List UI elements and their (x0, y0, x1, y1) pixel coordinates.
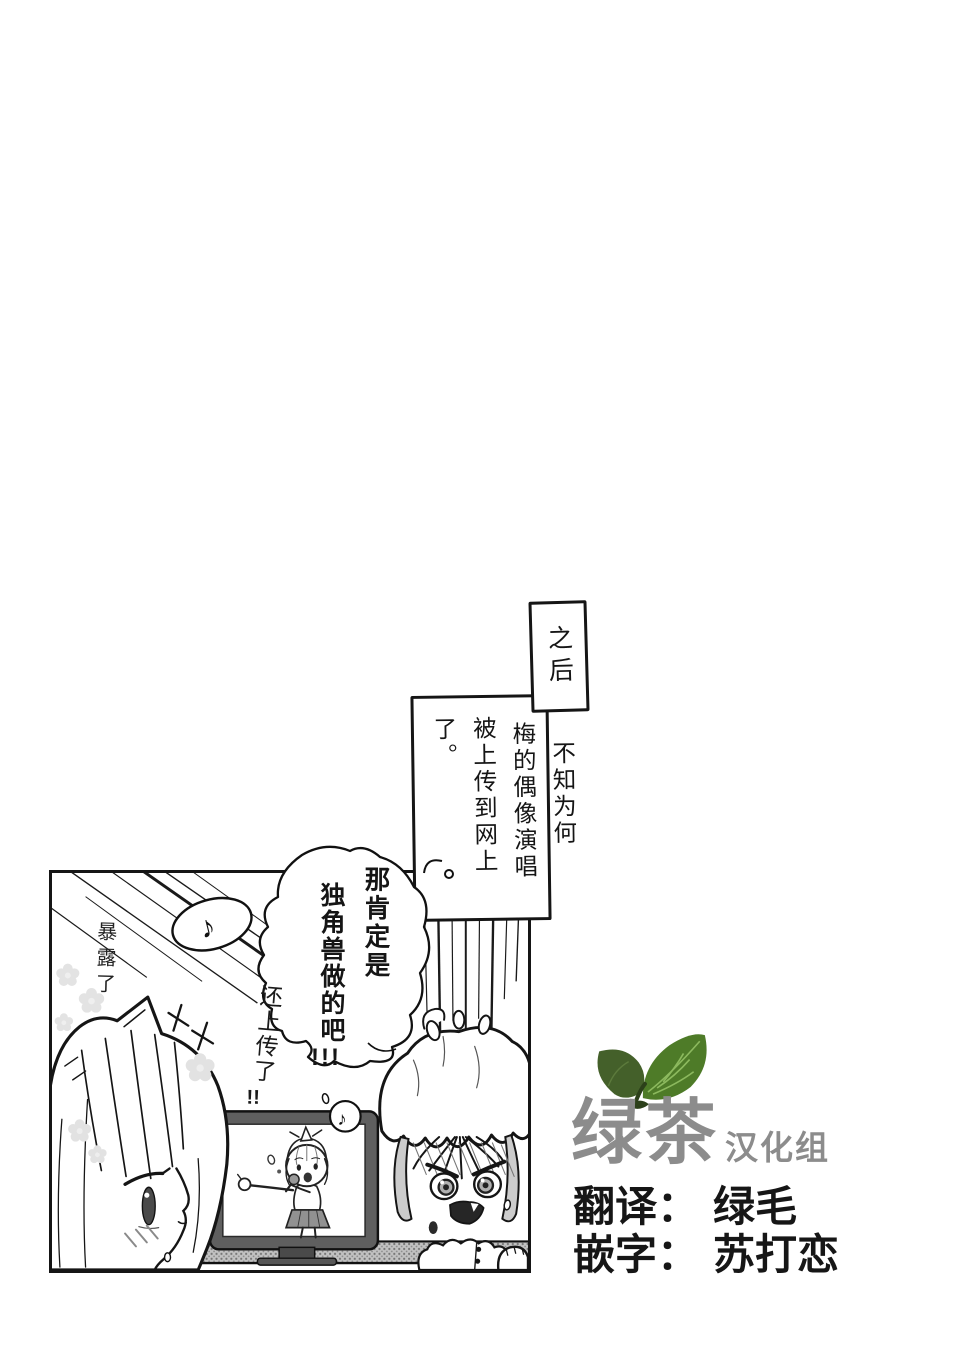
aside-note-exclamation: !! (246, 1087, 277, 1111)
manga-page: ♪ (0, 0, 955, 1360)
scanlation-group-logo: 绿茶 汉化组 (571, 1098, 830, 1169)
fist (498, 1247, 528, 1270)
microphone-icon (289, 1174, 299, 1184)
sweat-drop-icon (165, 1253, 171, 1262)
bubble-line-1: 那肯定是 (357, 866, 394, 980)
bubble-curl (424, 860, 442, 873)
group-name-main: 绿茶 (571, 1098, 719, 1169)
narration-col: 梅的偶像演唱 (502, 705, 544, 910)
narration-col: 不知为何 (541, 705, 583, 910)
bubble-line-2: 独角兽做的吧 (313, 882, 349, 1044)
typesetter-label: 嵌字： (573, 1231, 699, 1279)
group-name-suffix: 汉化组 (725, 1131, 830, 1164)
after-caption-box: 之后 (528, 600, 589, 713)
translator-name: 绿毛 (713, 1183, 797, 1231)
typesetter-name: 苏打恋 (713, 1231, 839, 1279)
translator-label: 翻译： (573, 1183, 699, 1231)
bubble-exclamation: !!! (311, 1044, 341, 1072)
sfx-exposed-text: 暴露了 (89, 921, 120, 1000)
typesetter-credit: 嵌字： 苏打恋 (573, 1231, 839, 1279)
translator-credit: 翻译： 绿毛 (573, 1183, 797, 1231)
after-caption-text: 之后 (540, 624, 578, 689)
open-mouth (450, 1201, 484, 1223)
bubble-dot (445, 870, 453, 878)
